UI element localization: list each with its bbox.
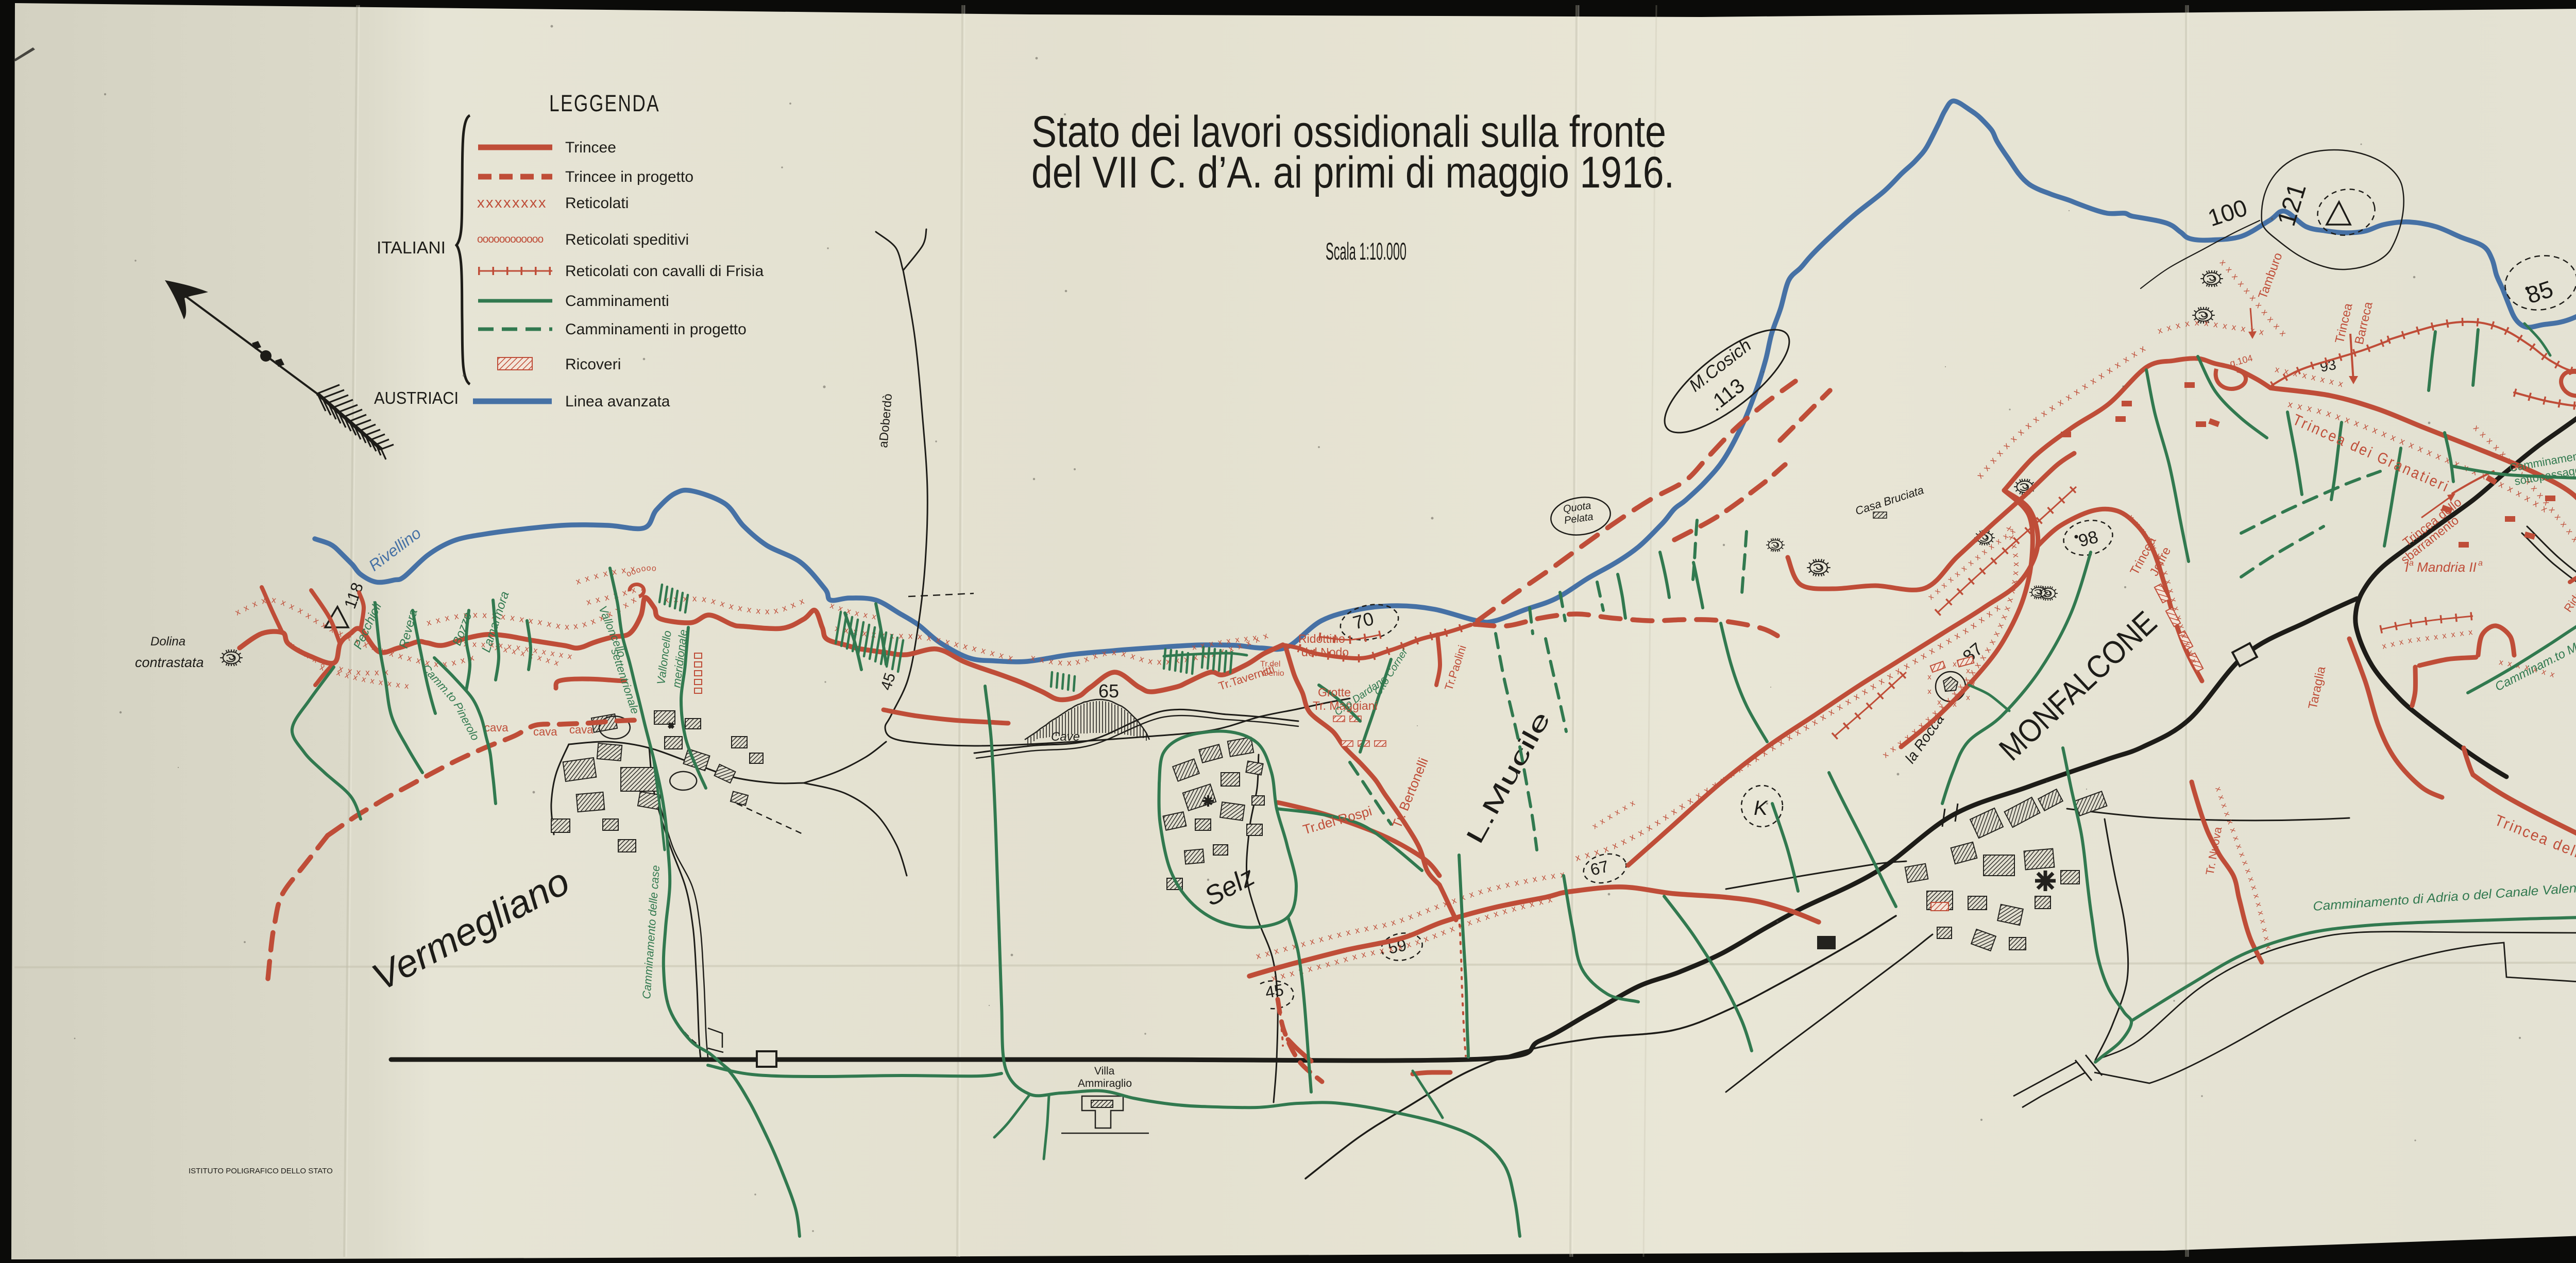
svg-text:x: x	[1927, 687, 1931, 696]
svg-text:cava: cava	[533, 725, 557, 738]
svg-text:x: x	[1927, 673, 1931, 681]
svg-text:Ricoveri: Ricoveri	[565, 356, 621, 373]
svg-text:ISTITUTO POLIGRAFICO DELLO STA: ISTITUTO POLIGRAFICO DELLO STATO	[189, 1167, 333, 1175]
svg-text:xxxxxxxx: xxxxxxxx	[477, 195, 547, 211]
svg-text:Scala 1:10.000: Scala 1:10.000	[1326, 237, 1406, 265]
svg-text:LEGGENDA: LEGGENDA	[549, 90, 660, 116]
svg-text:K: K	[1754, 797, 1769, 820]
svg-text:Dolina: Dolina	[150, 635, 185, 648]
svg-text:65: 65	[1098, 680, 1119, 702]
svg-text:Mandria II: Mandria II	[2413, 559, 2477, 575]
svg-text:del Nodo: del Nodo	[1301, 645, 1349, 659]
svg-text:a: a	[2478, 559, 2483, 568]
svg-text:contrastata: contrastata	[135, 655, 204, 670]
svg-text:del VII C. d’A. ai primi di ma: del VII C. d’A. ai primi di maggio 1916.	[1031, 148, 1674, 197]
svg-text:Villa: Villa	[1094, 1065, 1115, 1077]
svg-text:Reticolati speditivi: Reticolati speditivi	[565, 231, 689, 248]
svg-text:AUSTRIACI: AUSTRIACI	[374, 388, 459, 407]
svg-text:I: I	[2405, 559, 2409, 575]
svg-text:Camminamenti in progetto: Camminamenti in progetto	[565, 321, 747, 338]
svg-text:Camminamenti: Camminamenti	[565, 293, 669, 310]
svg-text:oooooooooooo: oooooooooooo	[477, 233, 543, 245]
svg-text:Trincee: Trincee	[565, 139, 616, 156]
svg-text:cava: cava	[569, 723, 594, 736]
svg-text:45: 45	[1264, 980, 1285, 1002]
svg-text:Trincee in progetto: Trincee in progetto	[565, 168, 693, 185]
svg-text:cava: cava	[484, 721, 509, 734]
svg-text:Reticolati con cavalli di Fris: Reticolati con cavalli di Frisia	[565, 263, 764, 280]
svg-text:Ammiraglio: Ammiraglio	[1078, 1078, 1132, 1089]
svg-text:Ridottino: Ridottino	[1298, 632, 1345, 645]
svg-text:Linea avanzata: Linea avanzata	[565, 393, 670, 410]
svg-text:x: x	[1966, 693, 1970, 702]
svg-text:Reticolati: Reticolati	[565, 195, 629, 212]
svg-text:ITALIANI: ITALIANI	[377, 238, 446, 257]
svg-text:x: x	[1953, 660, 1957, 669]
svg-text:Grotte: Grotte	[1318, 686, 1351, 699]
